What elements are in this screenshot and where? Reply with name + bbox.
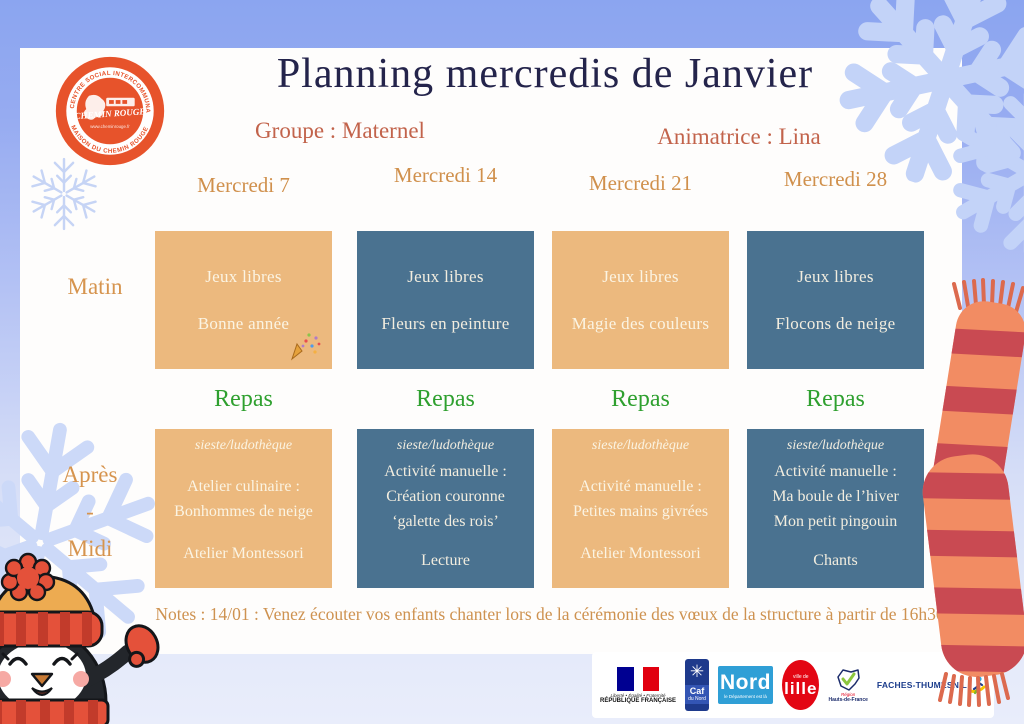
day-header: Mercredi 21 [552,171,729,196]
day-header: Mercredi 7 [155,173,332,198]
column-mercredi-7: Mercredi 7 Jeux libres Bonne année Repas… [155,160,332,600]
day-header: Mercredi 14 [357,163,534,188]
activity-line: Petites mains givrées [573,499,708,524]
caf-snowflake-icon: ✳ [690,661,704,683]
republique-francaise-logo: Liberté • Égalité • Fraternité RÉPUBLIQU… [600,667,676,704]
repas-label: Repas [552,386,729,413]
apres-midi-card: sieste/ludothèque Activité manuelle : Pe… [552,429,729,588]
animator-label: Animatrice : Lina [600,124,878,150]
matin-card: Jeux libres Bonne année [155,231,332,369]
sieste-label: sieste/ludothèque [787,438,884,454]
stamp-website: www.cheminrouge.fr [90,124,130,129]
notes-text: Notes : 14/01 : Venez écouter vos enfant… [150,604,950,625]
activity-line: Mon petit pingouin [774,509,898,534]
activity-line: Bonhommes de neige [174,499,313,524]
activity-line: Bonne année [198,314,290,334]
activity-line: Activité manuelle : [384,459,507,484]
association-stamp: CENTRE SOCIAL INTERCOMMUNAL MAISON DU CH… [53,54,167,168]
repas-label: Repas [747,386,924,413]
region-map-icon [835,668,861,692]
repas-label: Repas [357,386,534,413]
repas-label: Repas [155,386,332,413]
sieste-label: sieste/ludothèque [592,438,689,454]
activity-line: Ma boule de l’hiver [772,484,899,509]
party-popper-icon [286,329,322,363]
french-flag-icon [617,667,659,691]
caf-du-nord-logo: ✳ Caf du Nord [685,659,709,711]
activity-line: Atelier Montessori [183,541,303,566]
apres-midi-card: sieste/ludothèque Activité manuelle : Cr… [357,429,534,588]
activity-line: Fleurs en peinture [381,314,509,334]
scarf-illustration [904,268,1024,708]
activity-line: ‘galette des rois’ [392,509,499,534]
matin-row-label: Matin [40,274,150,300]
caf-sub: du Nord [685,696,709,702]
group-label: Groupe : Maternel [200,118,480,144]
ville-de-lille-logo: ville de lille [782,660,819,710]
hdf-name: Hauts-de-France [828,697,867,703]
day-header: Mercredi 28 [747,167,924,192]
sieste-label: sieste/ludothèque [397,438,494,454]
nord-name: Nord [720,672,771,694]
activity-line: Magie des couleurs [572,314,710,334]
activity-line: Jeux libres [407,267,483,287]
activity-line: Activité manuelle : [774,459,897,484]
caf-name: Caf [685,687,709,696]
rf-name: RÉPUBLIQUE FRANÇAISE [600,698,676,704]
lille-name: lille [784,680,817,697]
activity-line: Atelier culinaire : [187,474,300,499]
matin-card: Jeux libres Fleurs en peinture [357,231,534,369]
departement-nord-logo: Nord le Département est là [718,666,773,704]
hauts-de-france-logo: Région Hauts-de-France [828,668,867,703]
sieste-label: sieste/ludothèque [195,438,292,454]
activity-line: Jeux libres [602,267,678,287]
activity-line: Lecture [421,548,470,573]
activity-line: Création couronne [386,484,505,509]
apres-midi-card: sieste/ludothèque Activité manuelle : Ma… [747,429,924,588]
page-title: Planning mercredis de Janvier [130,50,960,98]
activity-line: Chants [813,548,857,573]
activity-line: Jeux libres [797,267,873,287]
apres-label-line: - [33,493,147,530]
nord-sub: le Département est là [724,694,767,699]
matin-card: Jeux libres Flocons de neige [747,231,924,369]
activity-line: Jeux libres [205,267,281,287]
apres-midi-row-label: Après - Midi [33,456,147,567]
column-mercredi-21: Mercredi 21 Jeux libres Magie des couleu… [552,160,729,600]
activity-line: Atelier Montessori [580,541,700,566]
activity-line: Activité manuelle : [579,474,702,499]
apres-label-line: Après [33,456,147,493]
penguin-illustration [0,552,190,724]
column-mercredi-28: Mercredi 28 Jeux libres Flocons de neige… [747,160,924,600]
column-mercredi-14: Mercredi 14 Jeux libres Fleurs en peintu… [357,160,534,600]
activity-line: Flocons de neige [776,314,896,334]
poster-page: CENTRE SOCIAL INTERCOMMUNAL MAISON DU CH… [0,0,1024,724]
matin-card: Jeux libres Magie des couleurs [552,231,729,369]
